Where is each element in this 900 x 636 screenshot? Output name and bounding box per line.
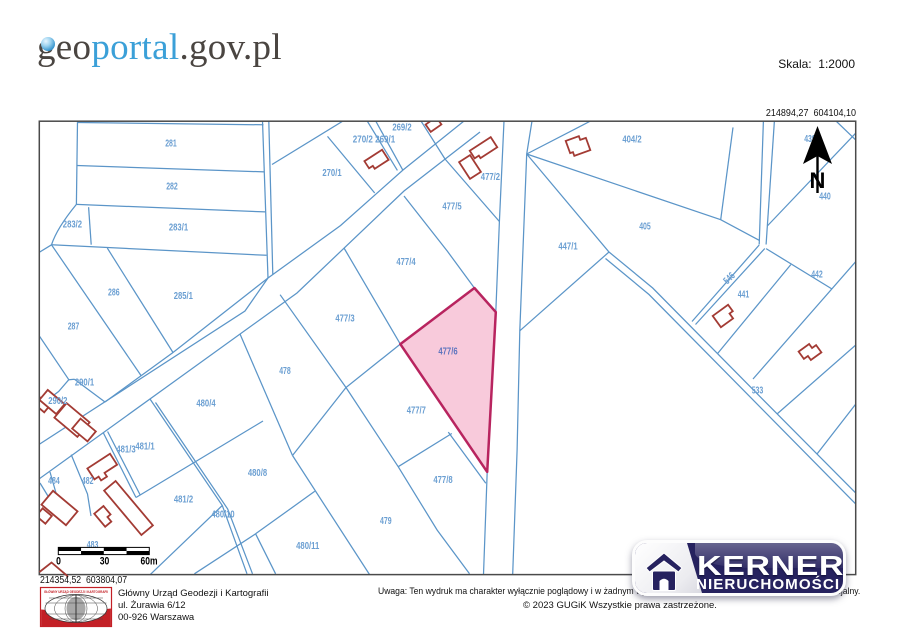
svg-text:282: 282 xyxy=(166,182,178,193)
svg-text:286: 286 xyxy=(108,288,120,299)
svg-text:283/1: 283/1 xyxy=(169,223,188,234)
svg-text:477/2: 477/2 xyxy=(481,172,500,183)
svg-text:270/1: 270/1 xyxy=(322,168,341,179)
svg-text:480/10: 480/10 xyxy=(211,510,234,521)
svg-text:441: 441 xyxy=(738,290,750,301)
svg-text:405: 405 xyxy=(639,222,651,233)
svg-text:270/2 269/1: 270/2 269/1 xyxy=(353,135,396,146)
svg-text:481/3: 481/3 xyxy=(116,445,135,456)
svg-text:480/4: 480/4 xyxy=(196,399,215,410)
svg-text:281: 281 xyxy=(165,139,177,150)
svg-text:477/5: 477/5 xyxy=(442,202,461,213)
svg-text:GŁÓWNY URZĄD GEODEZJI I KARTOG: GŁÓWNY URZĄD GEODEZJI I KARTOGRAFII xyxy=(44,589,108,594)
svg-text:283/2: 283/2 xyxy=(63,220,82,231)
svg-text:290/2: 290/2 xyxy=(48,396,67,407)
svg-text:477/4: 477/4 xyxy=(396,257,415,268)
svg-text:480/11: 480/11 xyxy=(296,541,319,552)
svg-text:477/7: 477/7 xyxy=(407,406,426,417)
svg-text:30: 30 xyxy=(100,556,110,568)
svg-text:478: 478 xyxy=(279,366,291,377)
svg-text:290/1: 290/1 xyxy=(75,378,94,389)
svg-text:60m: 60m xyxy=(141,556,158,568)
svg-text:480/8: 480/8 xyxy=(248,468,267,479)
svg-text:477/3: 477/3 xyxy=(335,314,354,325)
svg-text:477/6: 477/6 xyxy=(438,347,457,358)
svg-text:287: 287 xyxy=(68,322,80,333)
svg-text:N: N xyxy=(810,168,826,193)
svg-text:440: 440 xyxy=(819,192,831,203)
svg-text:482: 482 xyxy=(82,476,94,487)
svg-text:477/8: 477/8 xyxy=(433,475,452,486)
svg-text:481/1: 481/1 xyxy=(135,442,154,453)
svg-text:484: 484 xyxy=(48,476,60,487)
svg-text:0: 0 xyxy=(56,556,61,568)
svg-text:479: 479 xyxy=(380,516,392,527)
svg-text:533: 533 xyxy=(752,386,764,397)
svg-text:447/1: 447/1 xyxy=(558,242,577,253)
svg-text:269/2: 269/2 xyxy=(392,123,411,134)
svg-text:481/2: 481/2 xyxy=(174,495,193,506)
svg-text:404/2: 404/2 xyxy=(622,135,641,146)
svg-text:442: 442 xyxy=(811,270,823,281)
svg-text:285/1: 285/1 xyxy=(174,291,193,302)
